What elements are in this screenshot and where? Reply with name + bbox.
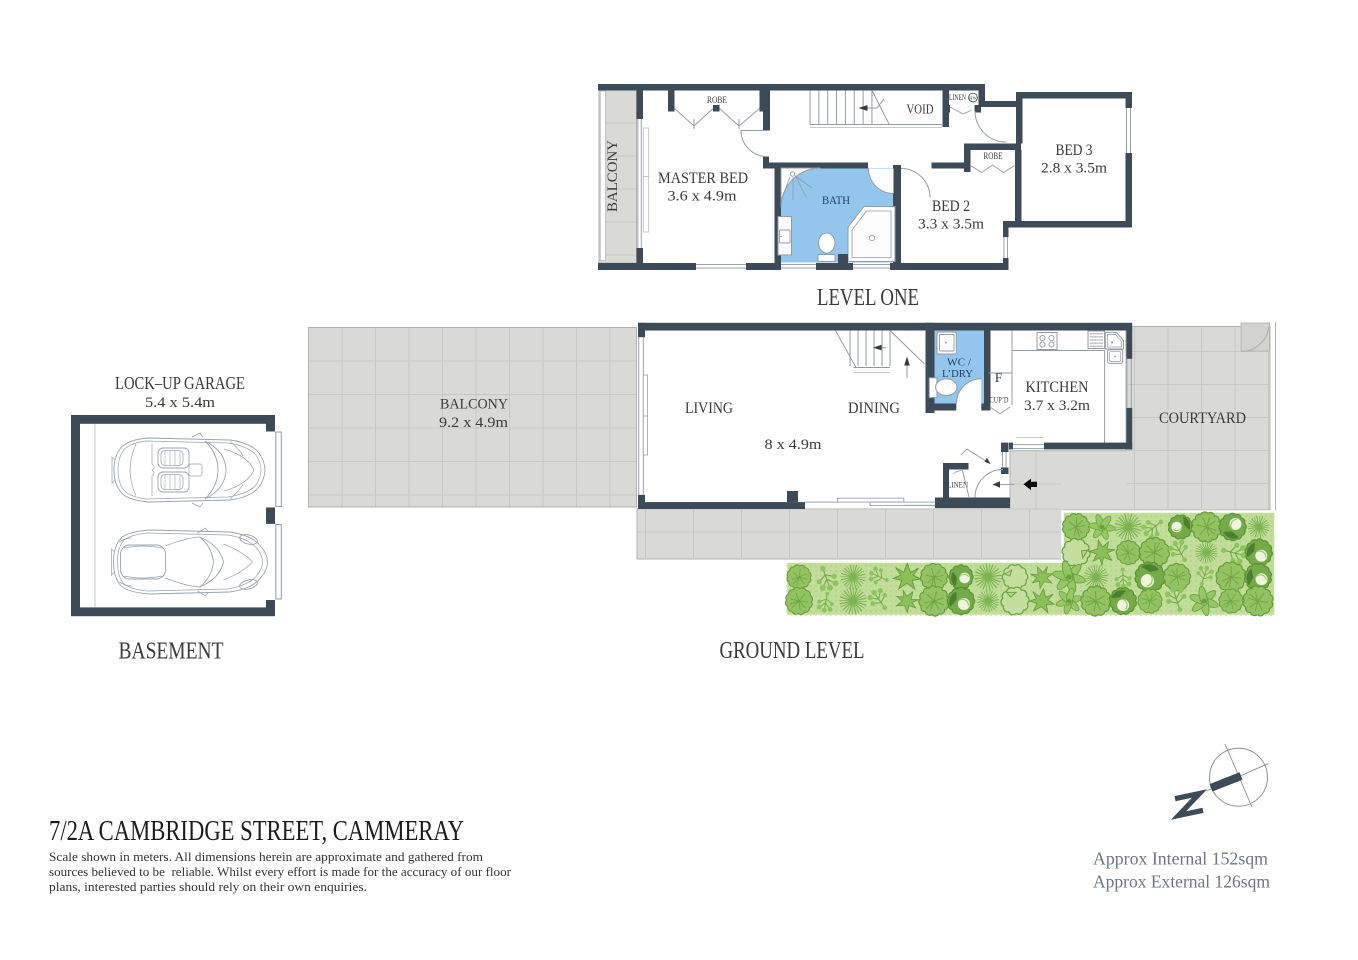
svg-text:plans, interested parties shou: plans, interested parties should rely on… (49, 879, 367, 894)
svg-text:BED 3: BED 3 (1056, 142, 1093, 159)
svg-text:2.8 x 3.5m: 2.8 x 3.5m (1041, 161, 1107, 177)
svg-text:DINING: DINING (848, 400, 900, 417)
svg-text:LOCK–UP GARAGE: LOCK–UP GARAGE (115, 373, 245, 393)
svg-text:L’DRY: L’DRY (942, 368, 973, 380)
svg-text:Approx Internal 152sqm: Approx Internal 152sqm (1093, 849, 1268, 869)
svg-text:5.4 x 5.4m: 5.4 x 5.4m (145, 395, 215, 411)
svg-text:MASTER BED: MASTER BED (658, 170, 748, 187)
svg-text:Approx External 126sqm: Approx External 126sqm (1093, 872, 1270, 892)
svg-text:LIVING: LIVING (685, 400, 733, 417)
svg-text:LEVEL ONE: LEVEL ONE (817, 285, 919, 311)
svg-text:ROBE: ROBE (984, 151, 1003, 161)
svg-text:BED 2: BED 2 (932, 198, 970, 215)
svg-text:BALCONY: BALCONY (605, 139, 621, 212)
svg-text:LINEN: LINEN (949, 93, 966, 102)
svg-text:CUP’D: CUP’D (990, 395, 1009, 405)
svg-text:VOID: VOID (907, 103, 934, 118)
svg-text:ROBE: ROBE (707, 96, 727, 106)
svg-text:Scale shown in meters. All dim: Scale shown in meters. All dimensions he… (49, 849, 483, 864)
svg-text:7/2A CAMBRIDGE STREET, CAMMERA: 7/2A CAMBRIDGE STREET, CAMMERAY (49, 815, 464, 847)
svg-text:HW: HW (969, 95, 977, 100)
svg-text:3.7 x 3.2m: 3.7 x 3.2m (1024, 398, 1090, 414)
svg-text:9.2 x 4.9m: 9.2 x 4.9m (439, 415, 508, 431)
svg-text:8 x 4.9m: 8 x 4.9m (765, 437, 822, 453)
svg-text:BATH: BATH (822, 195, 850, 207)
svg-text:COURTYARD: COURTYARD (1159, 410, 1246, 427)
svg-text:BASEMENT: BASEMENT (119, 639, 224, 665)
svg-text:GROUND LEVEL: GROUND LEVEL (720, 638, 865, 664)
svg-text:BALCONY: BALCONY (440, 397, 509, 413)
svg-text:3.6 x 4.9m: 3.6 x 4.9m (668, 189, 737, 205)
svg-text:sources believed to be reliab: sources believed to be reliable. Whilst … (49, 864, 512, 879)
svg-text:KITCHEN: KITCHEN (1026, 379, 1089, 396)
svg-text:F: F (995, 370, 1002, 385)
svg-text:WC /: WC / (947, 356, 972, 368)
svg-text:3.3 x 3.5m: 3.3 x 3.5m (918, 217, 984, 233)
